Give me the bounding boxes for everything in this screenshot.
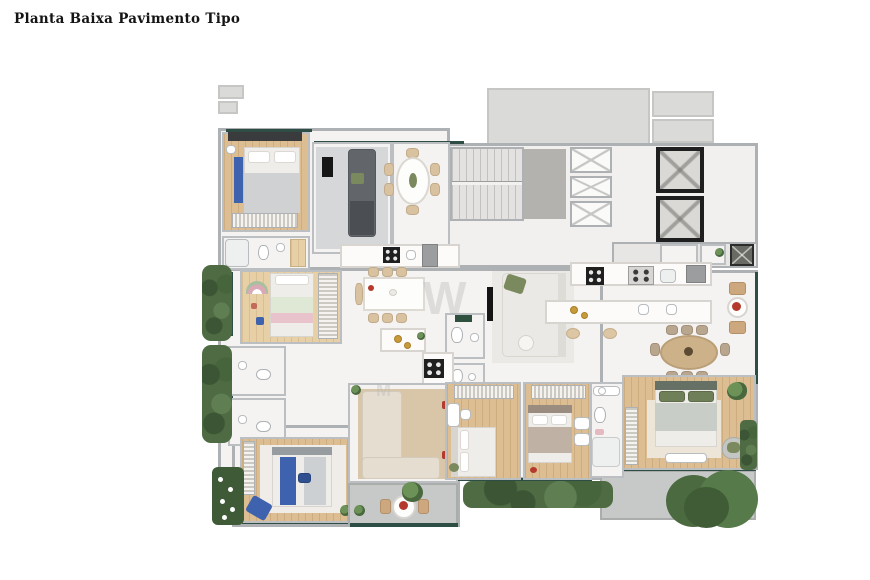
chair xyxy=(430,183,440,196)
chair xyxy=(430,163,440,176)
bed-blanket xyxy=(655,403,717,431)
chair xyxy=(384,183,394,196)
centerpiece xyxy=(409,173,417,188)
kids-quilt-stripe xyxy=(271,313,313,323)
shower xyxy=(592,437,620,467)
shaft xyxy=(570,147,612,173)
headboard xyxy=(655,381,717,390)
toilet xyxy=(256,421,271,432)
ottoman xyxy=(518,335,534,351)
stove xyxy=(383,247,400,263)
headboard-wall xyxy=(228,132,302,141)
kitchen-counter-1 xyxy=(340,244,460,268)
desk xyxy=(447,403,460,427)
slippers xyxy=(530,467,537,473)
pouf xyxy=(449,463,459,472)
headboard xyxy=(528,405,572,413)
ac-unit xyxy=(218,85,244,99)
flower xyxy=(230,507,235,512)
bed-blanket xyxy=(244,173,300,213)
bed-blanket xyxy=(528,427,572,453)
sink xyxy=(238,415,247,424)
pillow xyxy=(275,275,309,285)
flower xyxy=(228,487,233,492)
shaft xyxy=(570,201,612,227)
armchair-cushion xyxy=(727,442,740,453)
chair xyxy=(382,267,393,277)
elevator xyxy=(656,147,704,193)
toy xyxy=(251,303,257,309)
hedge xyxy=(463,481,613,508)
chair xyxy=(382,313,393,323)
chair xyxy=(380,499,391,514)
flower xyxy=(220,499,225,504)
bench xyxy=(574,417,590,430)
plant xyxy=(351,385,361,395)
tv xyxy=(322,157,333,177)
fruit-decor xyxy=(389,289,397,296)
desk-chair xyxy=(460,409,471,420)
oven xyxy=(422,244,438,267)
sink xyxy=(470,333,479,342)
counter-appliance xyxy=(686,265,706,283)
wardrobe xyxy=(232,213,298,228)
wardrobe xyxy=(454,385,514,399)
bench xyxy=(234,157,243,203)
pillow xyxy=(460,452,469,472)
plant xyxy=(417,332,425,340)
elevator xyxy=(656,196,704,242)
plant xyxy=(715,248,724,257)
bench xyxy=(355,283,363,305)
wardrobe xyxy=(625,407,638,465)
plant xyxy=(727,382,747,400)
chair xyxy=(396,313,407,323)
chair xyxy=(396,267,407,277)
trash-shaft xyxy=(730,244,754,266)
chair xyxy=(666,325,678,335)
chair xyxy=(384,163,394,176)
page-title: Planta Baixa Pavimento Tipo xyxy=(14,11,240,27)
sink xyxy=(406,250,416,260)
wardrobe xyxy=(318,273,338,339)
sink xyxy=(666,304,677,315)
cooktop xyxy=(586,267,604,285)
roof-slab xyxy=(487,88,650,146)
sofa-throw xyxy=(350,201,374,235)
sink xyxy=(468,373,476,381)
watermark-letter: M xyxy=(376,381,391,399)
sink xyxy=(598,387,606,395)
sink xyxy=(660,269,676,283)
chair xyxy=(720,343,730,356)
pillow xyxy=(460,430,469,450)
watermark-letter: W xyxy=(423,275,466,321)
hedge xyxy=(740,420,757,470)
wardrobe xyxy=(243,441,255,495)
window-line xyxy=(755,272,758,384)
pillow xyxy=(659,391,685,402)
fruit-bowl xyxy=(581,312,588,319)
chair xyxy=(729,282,746,295)
fruit-bowl xyxy=(404,342,411,349)
sink xyxy=(276,243,285,252)
plant xyxy=(402,482,423,502)
tv xyxy=(487,287,493,321)
bench xyxy=(574,433,590,446)
stove xyxy=(424,359,444,378)
pillow xyxy=(274,151,296,163)
chair xyxy=(729,321,746,334)
sink xyxy=(238,361,247,370)
chair xyxy=(368,313,379,323)
page: { "page": { "title": "Planta Baixa Pavim… xyxy=(0,0,870,580)
shaft xyxy=(570,176,612,198)
tree xyxy=(684,487,729,528)
stair-landing xyxy=(452,181,522,185)
bench xyxy=(665,453,707,463)
cushion xyxy=(351,173,364,184)
chair xyxy=(650,343,660,356)
stove xyxy=(628,266,654,285)
flowers xyxy=(399,501,408,510)
centerpiece xyxy=(684,347,693,356)
bed-runner xyxy=(280,457,296,505)
toilet xyxy=(258,245,269,260)
chair xyxy=(696,325,708,335)
flower xyxy=(222,515,227,520)
pillow xyxy=(248,151,270,163)
pillow xyxy=(298,473,311,483)
headboard xyxy=(272,447,332,455)
stool xyxy=(603,328,617,339)
plant xyxy=(354,505,365,516)
toy xyxy=(256,317,264,325)
toilet xyxy=(594,407,606,423)
fruit-bowl xyxy=(570,306,578,314)
roof-block xyxy=(652,119,714,143)
hedge xyxy=(202,265,232,341)
flowers xyxy=(732,302,741,311)
flower xyxy=(218,477,223,482)
cabinet xyxy=(290,239,306,267)
pillow xyxy=(688,391,714,402)
chair xyxy=(418,499,429,514)
wardrobe xyxy=(531,385,586,399)
shower xyxy=(225,239,249,267)
bath-mat xyxy=(595,429,604,435)
roof-block xyxy=(652,91,714,117)
teapot xyxy=(368,285,374,291)
chair xyxy=(368,267,379,277)
toilet xyxy=(256,369,271,380)
floor-plan: W M xyxy=(218,85,758,530)
ac-unit xyxy=(218,101,238,114)
l-sofa-chaise xyxy=(362,457,440,479)
chair xyxy=(681,325,693,335)
concrete-slab xyxy=(524,149,566,219)
chair xyxy=(406,205,419,215)
pillow xyxy=(551,415,567,425)
window-line xyxy=(350,523,458,527)
pillow xyxy=(532,415,548,425)
sink xyxy=(638,304,649,315)
nightstand xyxy=(226,145,236,154)
fruit-bowl xyxy=(394,335,402,343)
stool xyxy=(566,328,580,339)
toilet xyxy=(451,327,463,343)
flower-planter xyxy=(212,467,244,525)
hedge xyxy=(202,345,232,443)
